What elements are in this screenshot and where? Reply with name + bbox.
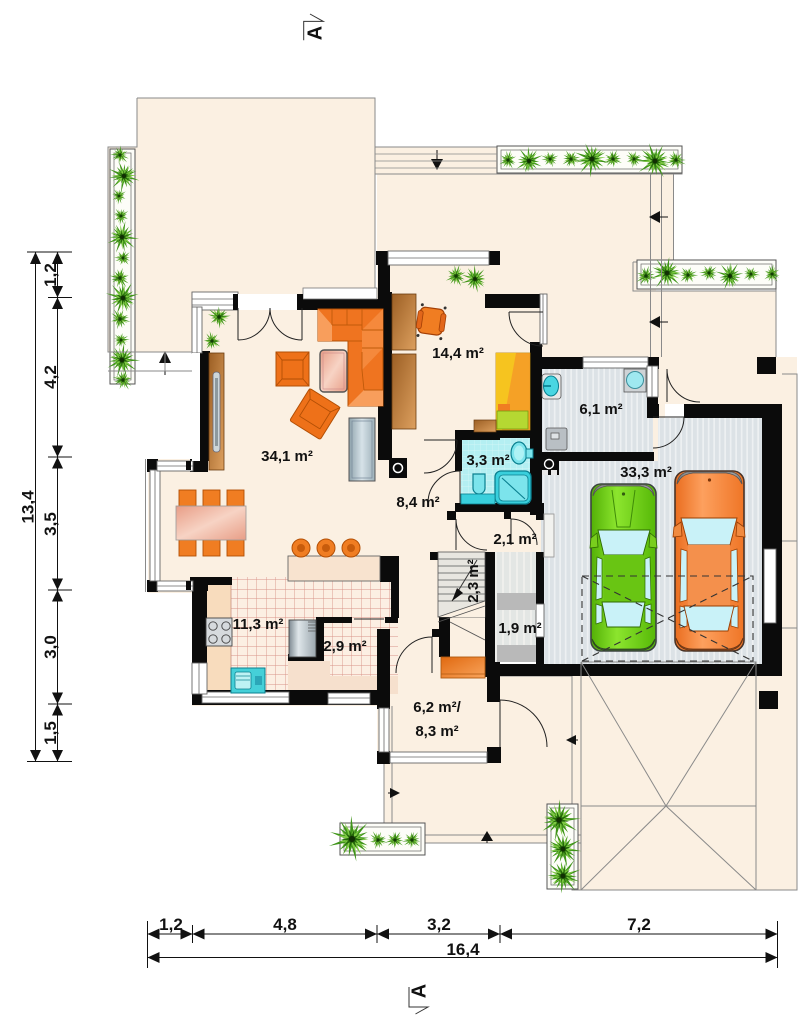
- svg-text:A: A: [304, 26, 326, 40]
- svg-text:14,4 m²: 14,4 m²: [432, 345, 484, 362]
- svg-text:7,2: 7,2: [627, 915, 651, 934]
- svg-text:3,2: 3,2: [427, 915, 451, 934]
- svg-text:8,4 m²: 8,4 m²: [396, 494, 439, 511]
- svg-text:16,4: 16,4: [446, 940, 480, 959]
- svg-text:8,3 m²: 8,3 m²: [415, 723, 458, 740]
- svg-text:33,3 m²: 33,3 m²: [620, 464, 672, 481]
- svg-text:13,4: 13,4: [19, 490, 38, 524]
- svg-text:3,5: 3,5: [41, 512, 60, 536]
- svg-text:A: A: [408, 984, 430, 998]
- svg-text:1,5: 1,5: [41, 721, 60, 745]
- svg-text:1,9 m²: 1,9 m²: [498, 620, 541, 637]
- svg-text:6,1 m²: 6,1 m²: [579, 401, 622, 418]
- svg-text:4,2: 4,2: [41, 365, 60, 389]
- svg-text:1,2: 1,2: [159, 915, 183, 934]
- svg-text:3,0: 3,0: [41, 635, 60, 659]
- svg-text:4,8: 4,8: [273, 915, 297, 934]
- svg-text:34,1 m²: 34,1 m²: [261, 448, 313, 465]
- svg-text:2,9 m²: 2,9 m²: [323, 638, 366, 655]
- svg-text:3,3 m²: 3,3 m²: [466, 452, 509, 469]
- svg-text:2,3 m²: 2,3 m²: [465, 559, 482, 602]
- svg-text:2,1 m²: 2,1 m²: [493, 531, 536, 548]
- svg-text:1,2: 1,2: [41, 263, 60, 287]
- svg-text:11,3 m²: 11,3 m²: [233, 616, 284, 633]
- svg-text:6,2 m²/: 6,2 m²/: [413, 699, 461, 716]
